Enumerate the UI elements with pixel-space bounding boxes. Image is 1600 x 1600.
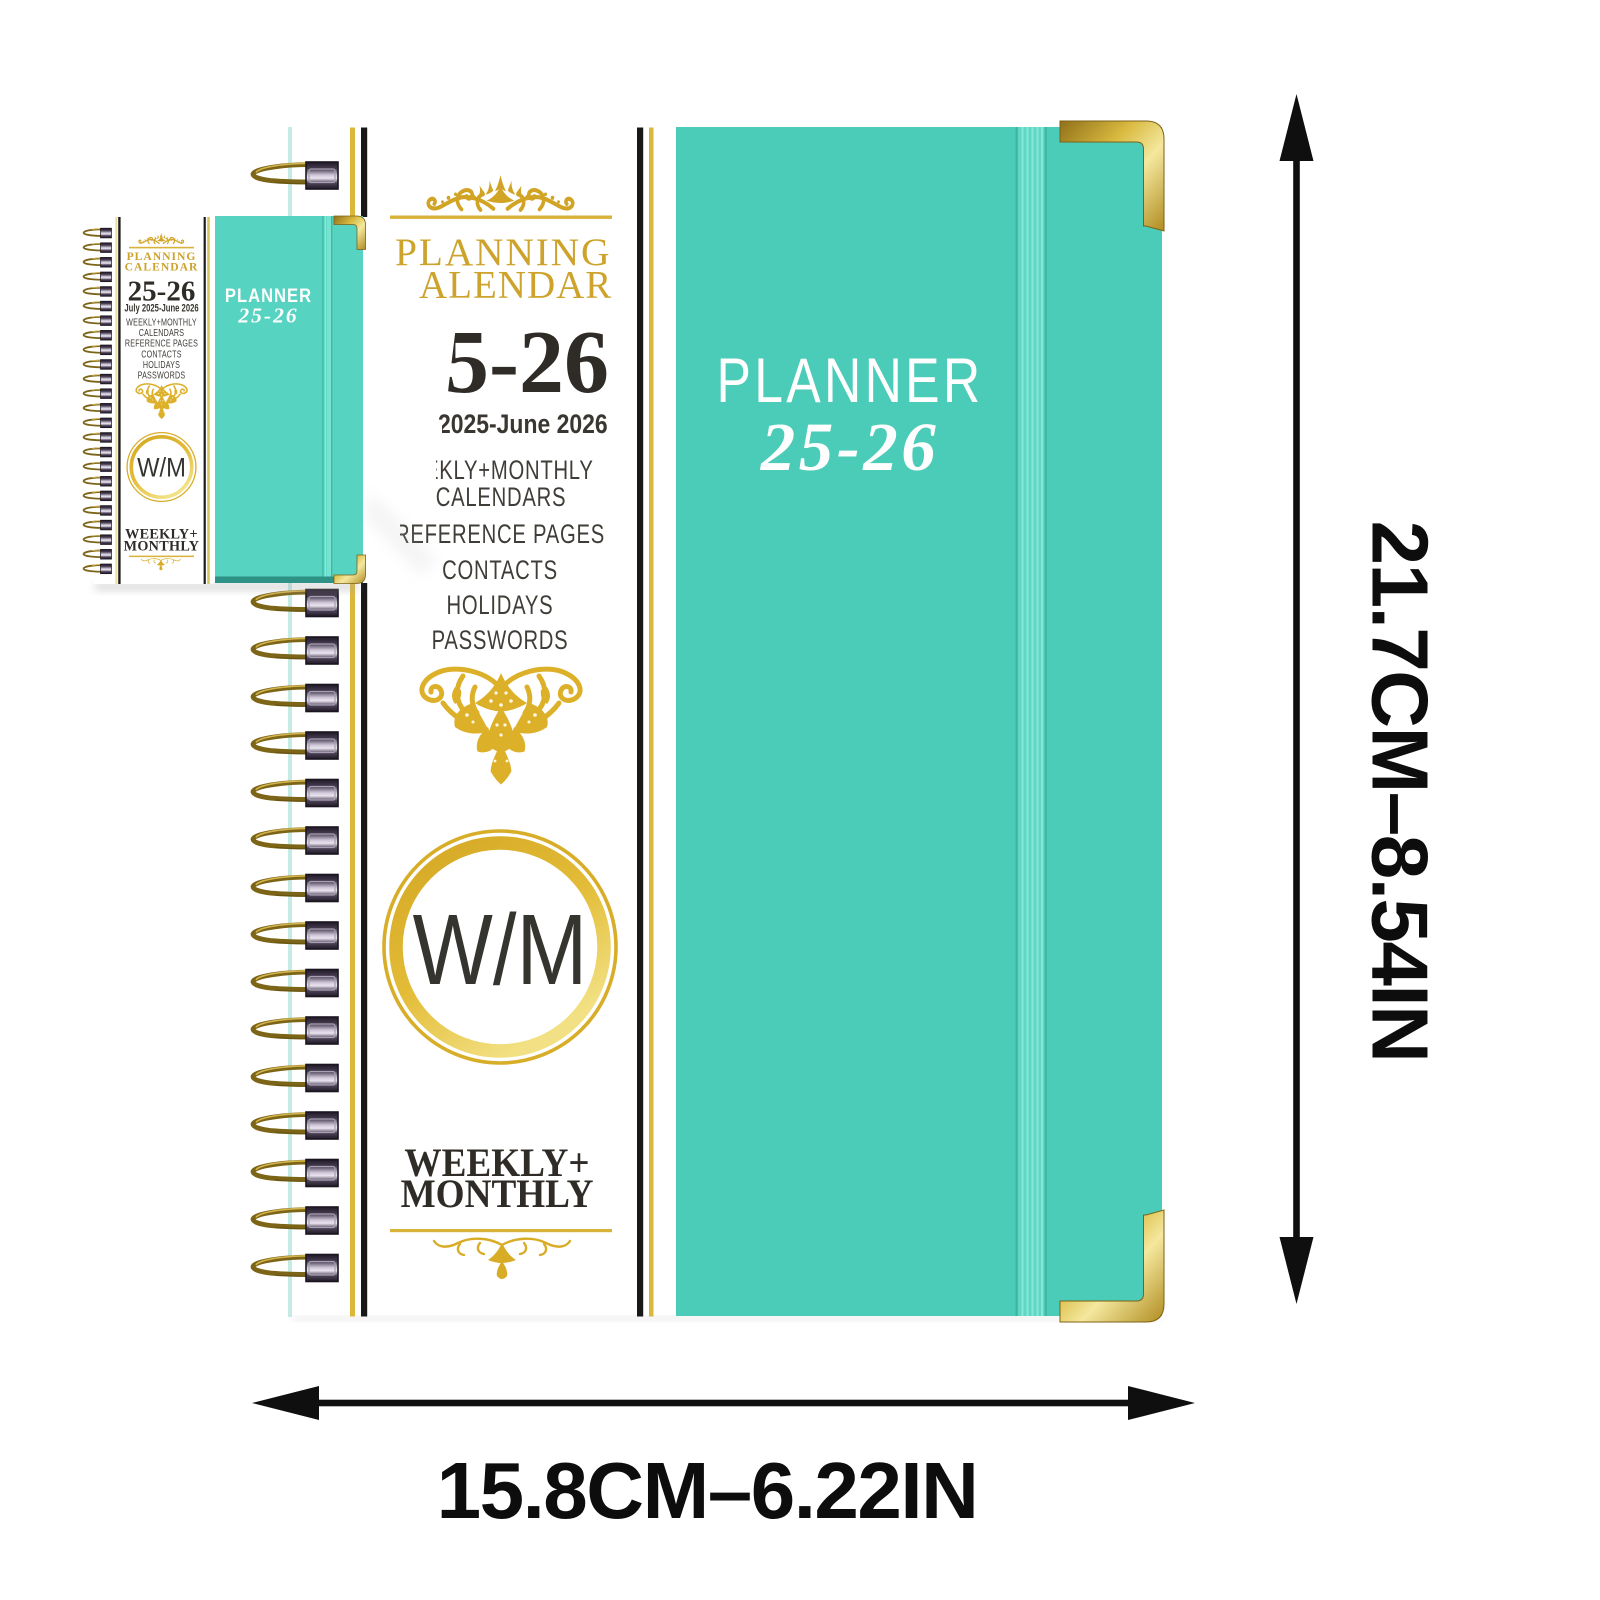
svg-text:PASSWORDS: PASSWORDS [138,369,186,381]
svg-text:July 2025-June 2026: July 2025-June 2026 [124,302,199,315]
svg-text:HOLIDAYS: HOLIDAYS [447,590,554,621]
svg-text:PLANNER: PLANNER [717,346,984,416]
svg-text:REFERENCE PAGES: REFERENCE PAGES [395,519,605,550]
svg-text:CALENDAR: CALENDAR [125,261,199,274]
svg-text:MONTHLY: MONTHLY [124,539,200,555]
svg-text:2025-June 2026: 2025-June 2026 [438,409,608,439]
svg-text:5-26: 5-26 [444,313,609,412]
svg-text:25-26: 25-26 [237,304,298,328]
svg-text:MONTHLY: MONTHLY [401,1173,594,1216]
svg-text:CONTACTS: CONTACTS [442,555,558,586]
svg-text:PASSWORDS: PASSWORDS [432,625,569,656]
svg-text:ALENDAR: ALENDAR [419,264,612,307]
svg-text:CALENDARS: CALENDARS [436,482,567,513]
svg-text:21.7CM–8.54IN: 21.7CM–8.54IN [1355,521,1444,1062]
svg-text:W/M: W/M [137,453,186,483]
svg-text:25-26: 25-26 [760,409,939,485]
svg-text:W/M: W/M [413,893,588,1005]
svg-text:EKLY+MONTHLY: EKLY+MONTHLY [425,455,594,486]
svg-text:15.8CM–6.22IN: 15.8CM–6.22IN [437,1446,978,1535]
